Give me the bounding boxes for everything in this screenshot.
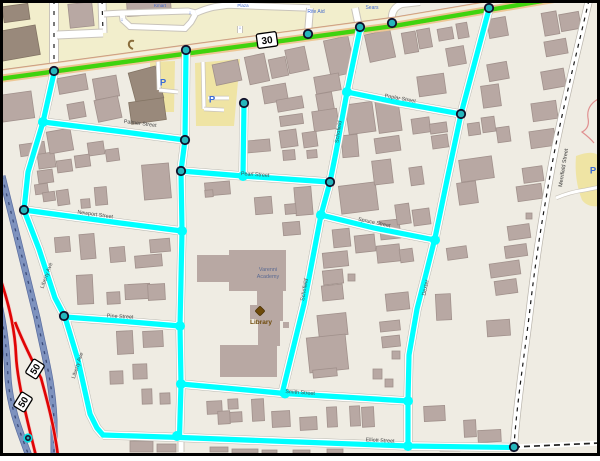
svg-text:Library: Library	[250, 319, 272, 326]
svg-text:Sears: Sears	[365, 5, 379, 11]
svg-text:30: 30	[261, 35, 274, 48]
svg-text:Varenni: Varenni	[259, 267, 277, 273]
svg-text:Kmart: Kmart	[154, 3, 167, 8]
svg-text:P: P	[590, 166, 597, 177]
svg-text:Rite Aid: Rite Aid	[307, 9, 324, 15]
svg-text:↓: ↓	[239, 25, 242, 31]
svg-text:↓: ↓	[189, 10, 192, 16]
svg-text:Academy: Academy	[257, 274, 280, 280]
svg-text:Plaza: Plaza	[237, 3, 249, 8]
svg-text:P: P	[209, 95, 216, 106]
svg-text:↓: ↓	[121, 17, 124, 23]
svg-text:P: P	[160, 78, 167, 89]
